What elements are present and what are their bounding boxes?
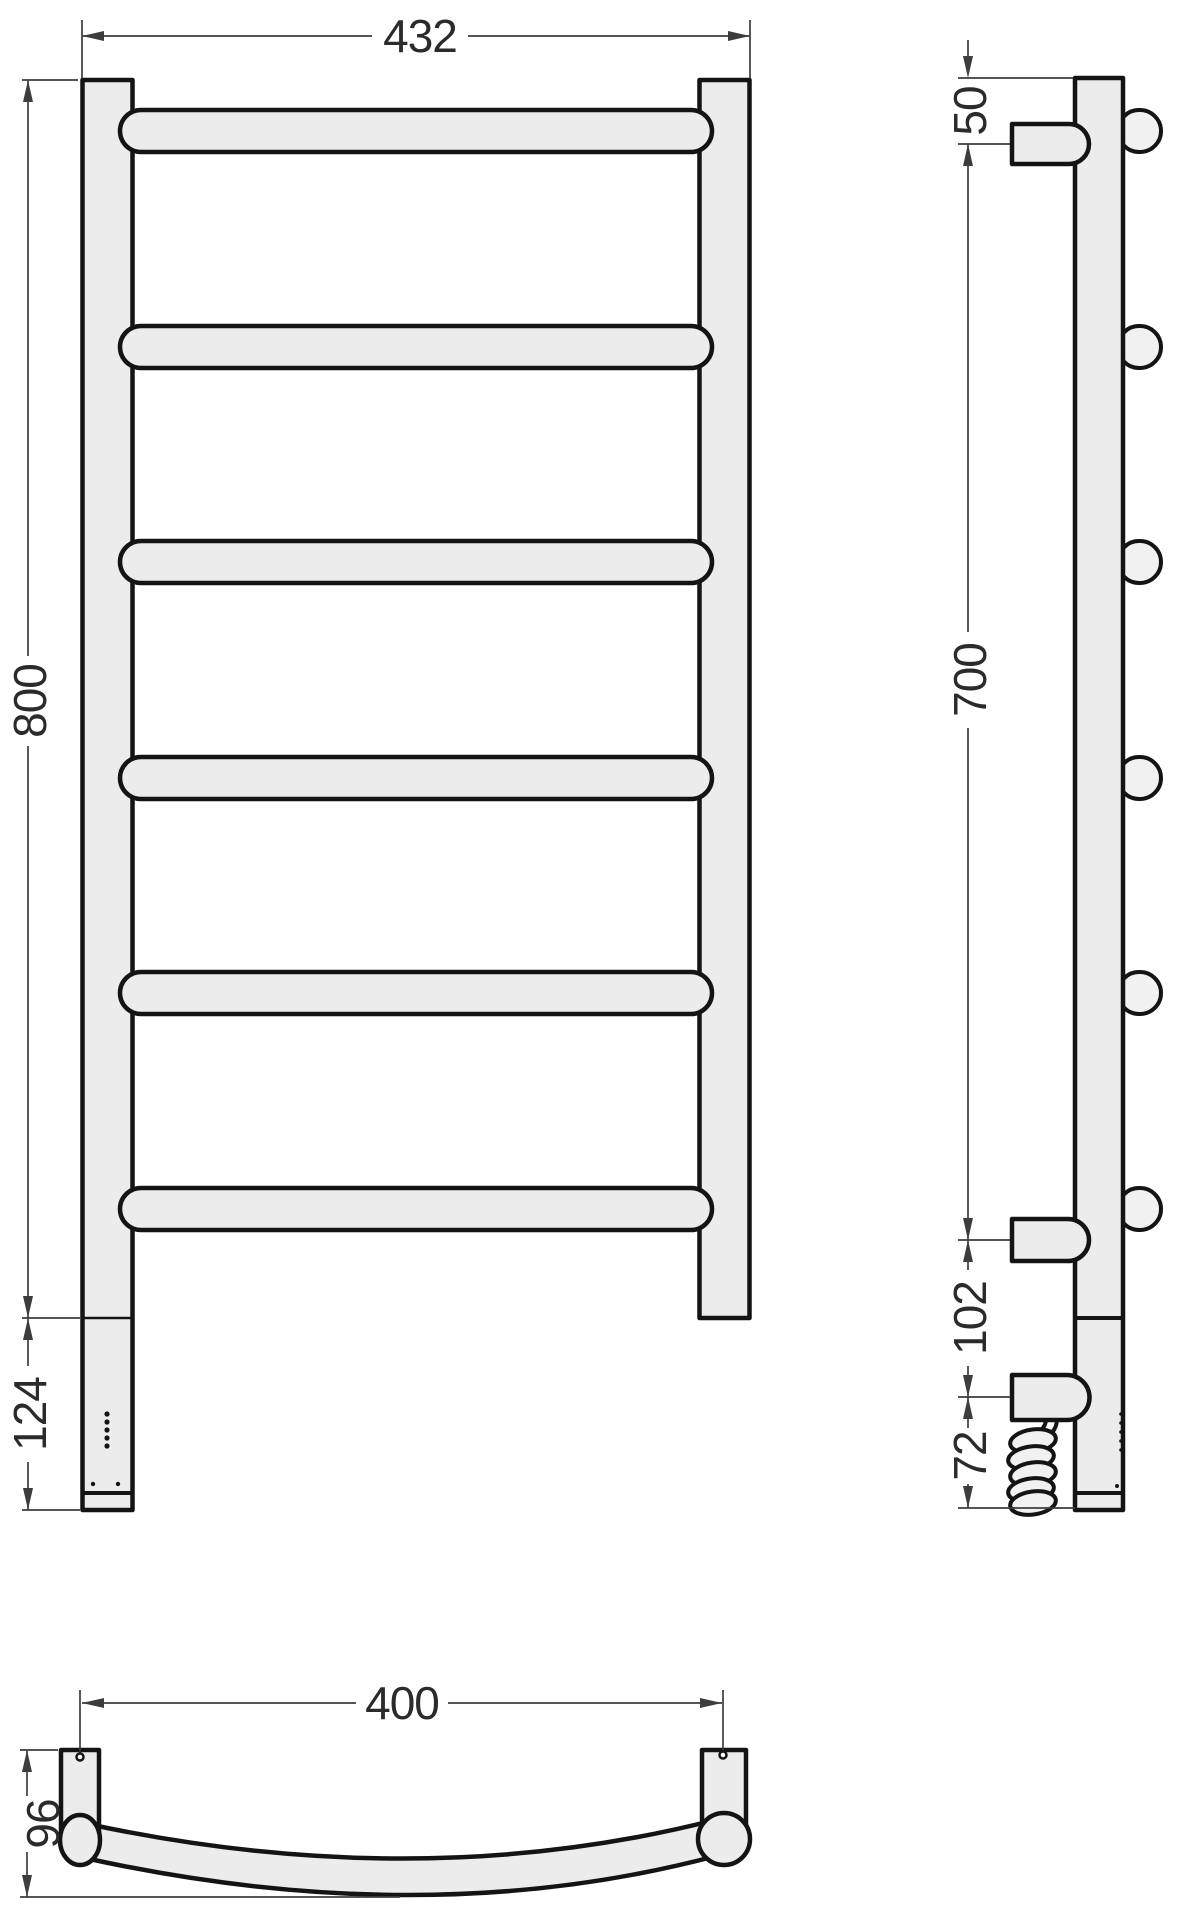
side-post: [1075, 78, 1123, 1510]
front-rung: [120, 541, 712, 583]
front-rung: [120, 110, 712, 152]
dim-label-72: 72: [944, 1431, 996, 1480]
dimension-overall-height: 800: [4, 80, 78, 1318]
dim-label-800: 800: [4, 664, 56, 738]
coiled-cable: [1007, 1420, 1058, 1518]
dimension-bracket-span: 700: [944, 144, 1010, 1240]
dim-label-400: 400: [365, 1677, 439, 1729]
mounting-hole-right: [720, 1752, 727, 1759]
post-section-right: [698, 1813, 750, 1865]
curved-rail-top-view: [85, 1820, 716, 1895]
front-rung: [120, 757, 712, 799]
mounting-hole-left: [77, 1754, 84, 1761]
dim-label-50: 50: [944, 86, 996, 135]
dim-label-102: 102: [944, 1281, 996, 1355]
bottom-view: [60, 1750, 750, 1895]
wall-bracket-top: [1012, 124, 1089, 164]
dim-label-124: 124: [4, 1377, 56, 1451]
wall-bracket-bottom: [1012, 1219, 1089, 1261]
dimension-heater-section: 124: [4, 1318, 80, 1510]
front-view: [83, 80, 750, 1510]
front-right-post: [700, 80, 750, 1318]
dimension-mounting-span: 400: [80, 1677, 723, 1754]
side-view: [1007, 78, 1161, 1518]
front-rung: [120, 326, 712, 368]
dimension-overall-width: 432: [82, 10, 750, 78]
dim-label-96: 96: [17, 1799, 69, 1848]
front-rung: [120, 972, 712, 1014]
front-rung: [120, 1188, 712, 1230]
dim-label-432: 432: [383, 10, 457, 62]
technical-drawing-canvas: 432 800 124 50: [0, 0, 1181, 1920]
dimensions: 432 800 124 50: [4, 10, 1075, 1897]
dim-label-700: 700: [944, 643, 996, 717]
electric-connector: [1012, 1375, 1090, 1420]
dimension-bracket-to-connector: 102: [944, 1240, 1010, 1397]
front-left-post: [83, 80, 133, 1510]
